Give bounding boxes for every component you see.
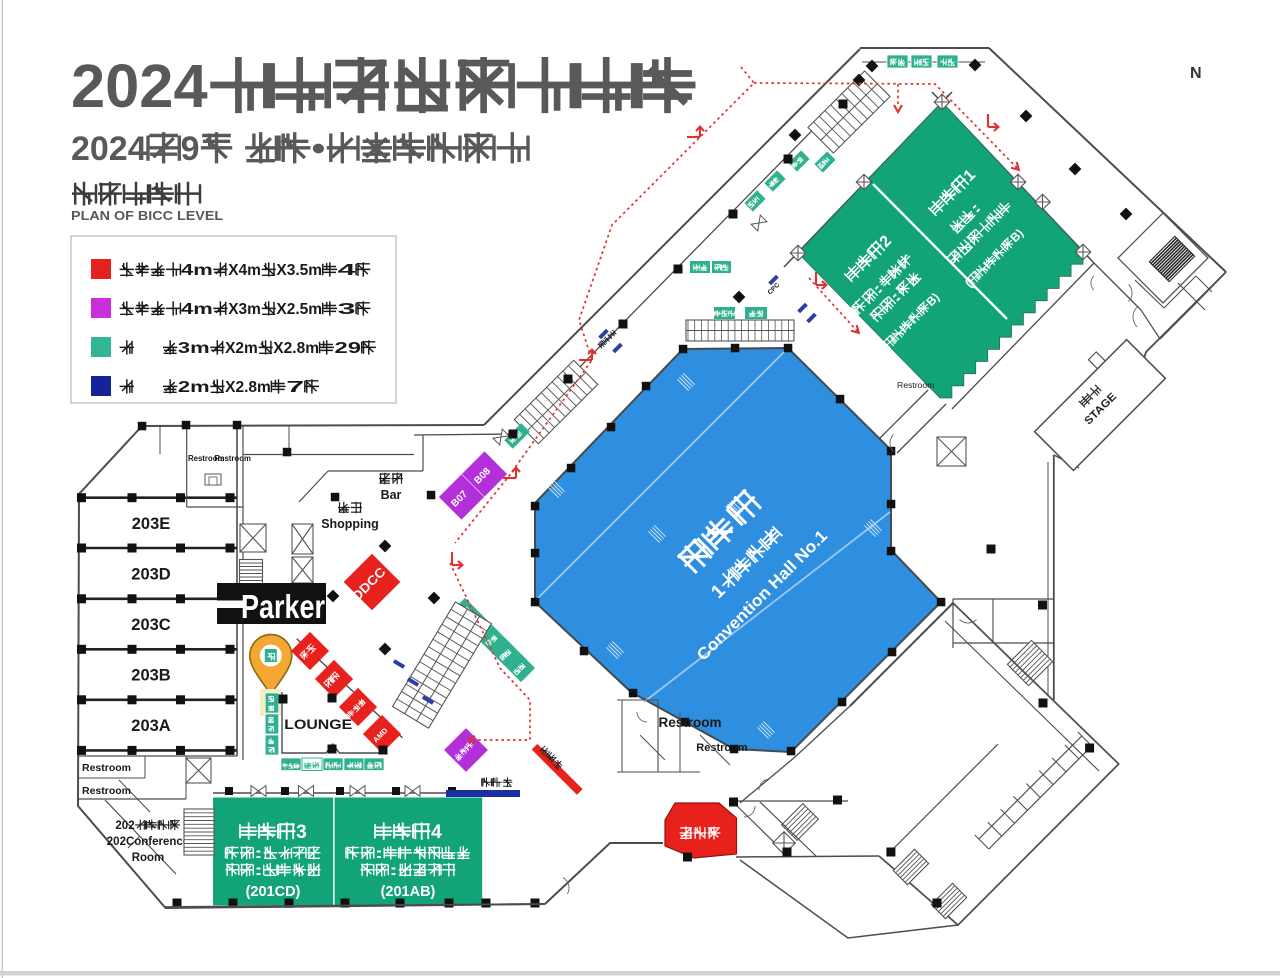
svg-text:Restroom: Restroom: [82, 785, 131, 797]
svg-text::: :: [254, 863, 263, 879]
svg-text:Restroom: Restroom: [659, 715, 722, 730]
svg-text:Restroom: Restroom: [897, 381, 935, 390]
svg-text:202Conference: 202Conference: [107, 836, 189, 848]
svg-text:Room: Room: [132, 852, 165, 864]
svg-text:4: 4: [338, 262, 357, 279]
svg-text:•: •: [312, 130, 326, 168]
svg-text:202: 202: [115, 820, 134, 832]
svg-text:7: 7: [286, 379, 304, 396]
svg-text:N: N: [1190, 65, 1202, 82]
svg-text::: :: [389, 863, 398, 879]
svg-text:9: 9: [181, 130, 200, 168]
svg-text::: :: [254, 846, 263, 862]
svg-text:Restroom: Restroom: [82, 762, 131, 774]
svg-text:4m: 4m: [181, 262, 213, 279]
svg-text:X3m: X3m: [228, 301, 261, 318]
svg-text:203B: 203B: [131, 667, 171, 685]
svg-text:203D: 203D: [131, 565, 171, 583]
svg-text:X3.5m: X3.5m: [276, 262, 322, 279]
svg-text:X4m: X4m: [228, 262, 261, 279]
svg-text:X2.8m: X2.8m: [225, 379, 271, 396]
svg-text:LOUNGE: LOUNGE: [284, 716, 352, 732]
svg-text:2024: 2024: [71, 130, 147, 168]
svg-text:X2.5m: X2.5m: [276, 301, 322, 318]
svg-text::: :: [374, 846, 383, 862]
svg-text:2024: 2024: [71, 52, 208, 120]
svg-text:X2.8m: X2.8m: [273, 340, 319, 357]
svg-text:3m: 3m: [178, 340, 210, 357]
svg-text:4m: 4m: [181, 301, 213, 318]
svg-text:Shopping: Shopping: [321, 517, 379, 531]
svg-text:(201AB): (201AB): [381, 884, 436, 900]
svg-text:3: 3: [338, 301, 357, 318]
svg-text:Restroom: Restroom: [696, 742, 748, 754]
svg-text:4: 4: [431, 822, 442, 843]
svg-text:Bar: Bar: [381, 488, 402, 502]
svg-text:PLAN OF BICC LEVEL: PLAN OF BICC LEVEL: [71, 209, 224, 223]
svg-text:29: 29: [335, 340, 362, 357]
svg-text:2m: 2m: [178, 379, 210, 396]
svg-text:X2m: X2m: [225, 340, 258, 357]
svg-text:Restroom: Restroom: [215, 454, 251, 463]
svg-text:203E: 203E: [132, 515, 171, 533]
svg-text:203A: 203A: [131, 717, 171, 735]
svg-text:3: 3: [296, 822, 307, 843]
svg-text:Parker: Parker: [241, 588, 325, 625]
svg-text:203C: 203C: [131, 616, 171, 634]
svg-text:(201CD): (201CD): [246, 884, 301, 900]
